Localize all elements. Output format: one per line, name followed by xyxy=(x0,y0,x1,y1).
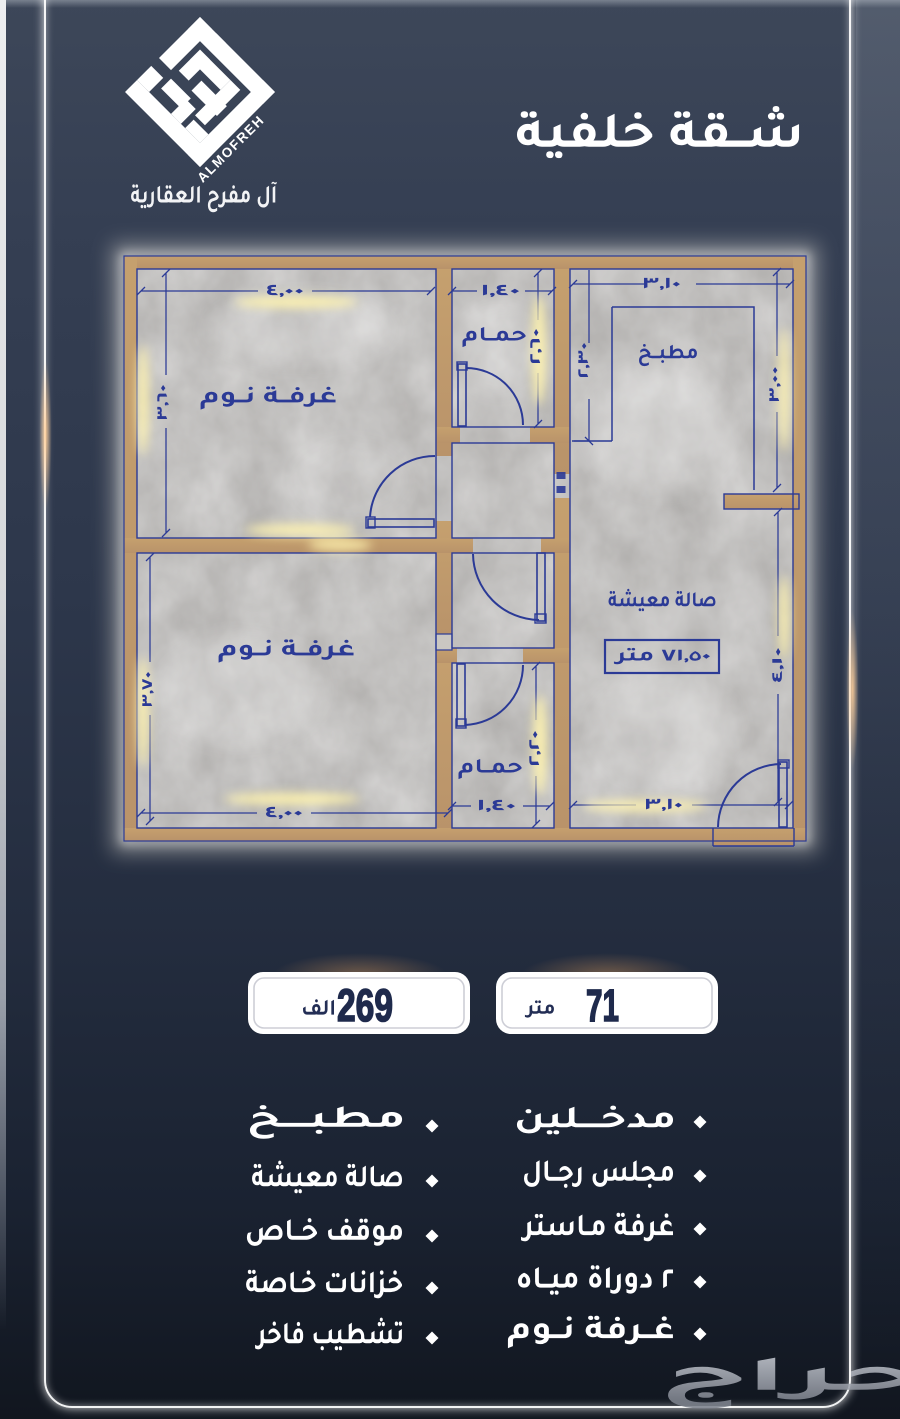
svg-text:71: 71 xyxy=(586,980,619,1031)
svg-text:269: 269 xyxy=(337,980,393,1031)
